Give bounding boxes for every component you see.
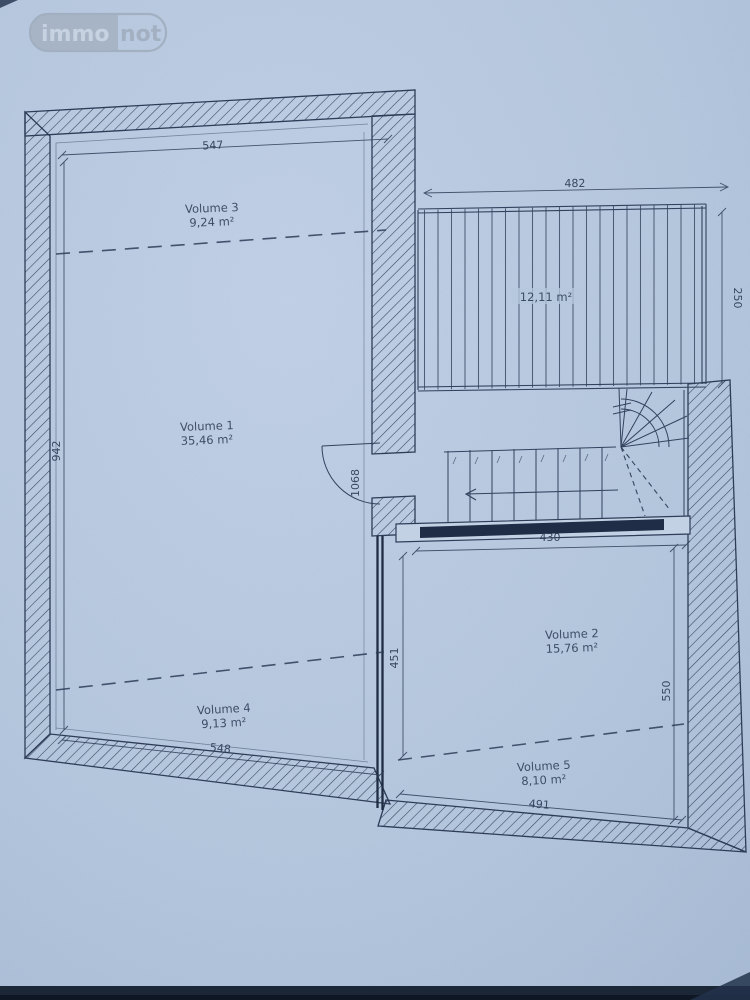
dim-terrace-depth: 250	[731, 288, 744, 309]
room-v2-area: 15,76 m²	[545, 640, 598, 656]
floorplan-photo: 12,11 m²	[0, 0, 750, 1000]
floorplan-svg: 12,11 m²	[0, 0, 750, 1000]
dim-bottom-right-width: 491	[528, 797, 550, 812]
room-v5-area: 8,10 m²	[521, 772, 567, 788]
watermark-text-immo: immo	[41, 22, 110, 47]
dim-left-height: 942	[50, 441, 63, 462]
bottom-edge-dark	[0, 995, 750, 1000]
room-v1-area: 35,46 m²	[180, 432, 233, 448]
dim-inner-height: 451	[388, 648, 401, 669]
dim-top-width: 547	[202, 138, 224, 152]
watermark-text-not: not	[120, 22, 162, 47]
dim-door-height: 1068	[349, 469, 362, 497]
dim-hall-width: 430	[540, 531, 561, 544]
wall-interior-upper	[372, 114, 415, 454]
dim-right-height: 550	[660, 681, 673, 702]
dim-bottom-width: 548	[209, 741, 231, 756]
terrace: 12,11 m²	[418, 204, 706, 391]
dim-terrace-width: 482	[564, 177, 585, 190]
wall-left	[25, 112, 50, 758]
room-v4-area: 9,13 m²	[201, 715, 247, 731]
room-v3-area: 9,24 m²	[189, 214, 235, 230]
terrace-area-label: 12,11 m²	[520, 290, 572, 304]
